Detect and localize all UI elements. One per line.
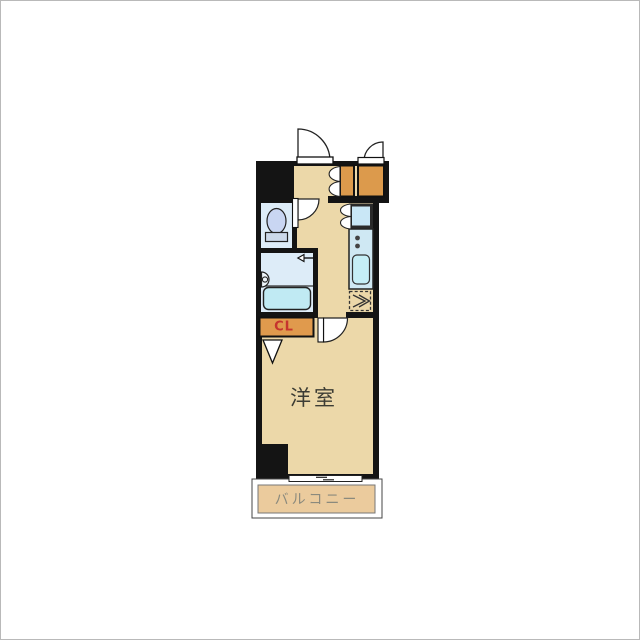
stove-burner-icon <box>355 244 360 249</box>
toilet-bowl-icon <box>267 209 286 234</box>
entrance-door-icon <box>297 129 333 164</box>
wall-corner-block <box>258 444 288 478</box>
wall-room-top <box>346 312 379 318</box>
stove-burner-icon <box>355 236 360 241</box>
bathtub-icon <box>264 288 311 310</box>
entrance-door-leaf <box>297 157 333 164</box>
toilet-door-leaf <box>293 199 299 228</box>
wall-bath-right <box>313 253 318 312</box>
balcony-window-icon <box>289 476 362 482</box>
room-door-leaf <box>318 318 324 342</box>
window-frame <box>289 476 362 482</box>
closet-label: CL <box>274 320 294 335</box>
room-label: 洋室 <box>290 382 338 412</box>
floor-plan-image: 洋室 バルコニー CL <box>0 0 640 640</box>
kitchen-sink-icon <box>353 255 370 284</box>
wall-toilet-top <box>256 198 297 203</box>
top-right-door-leaf <box>358 158 384 165</box>
top-right-door-icon <box>358 142 384 164</box>
wall-bath-top <box>256 248 318 253</box>
balcony-label: バルコニー <box>275 489 360 509</box>
floor-plan-drawing <box>1 1 640 640</box>
toilet-base-icon <box>266 233 288 242</box>
wall-entrance-left-mass <box>256 161 294 203</box>
entrance-door-swing <box>298 129 330 161</box>
washing-machine-space <box>351 205 372 227</box>
entrance-storage-large <box>358 166 384 197</box>
wall-right <box>373 198 379 482</box>
entrance-storage-small <box>340 166 354 197</box>
